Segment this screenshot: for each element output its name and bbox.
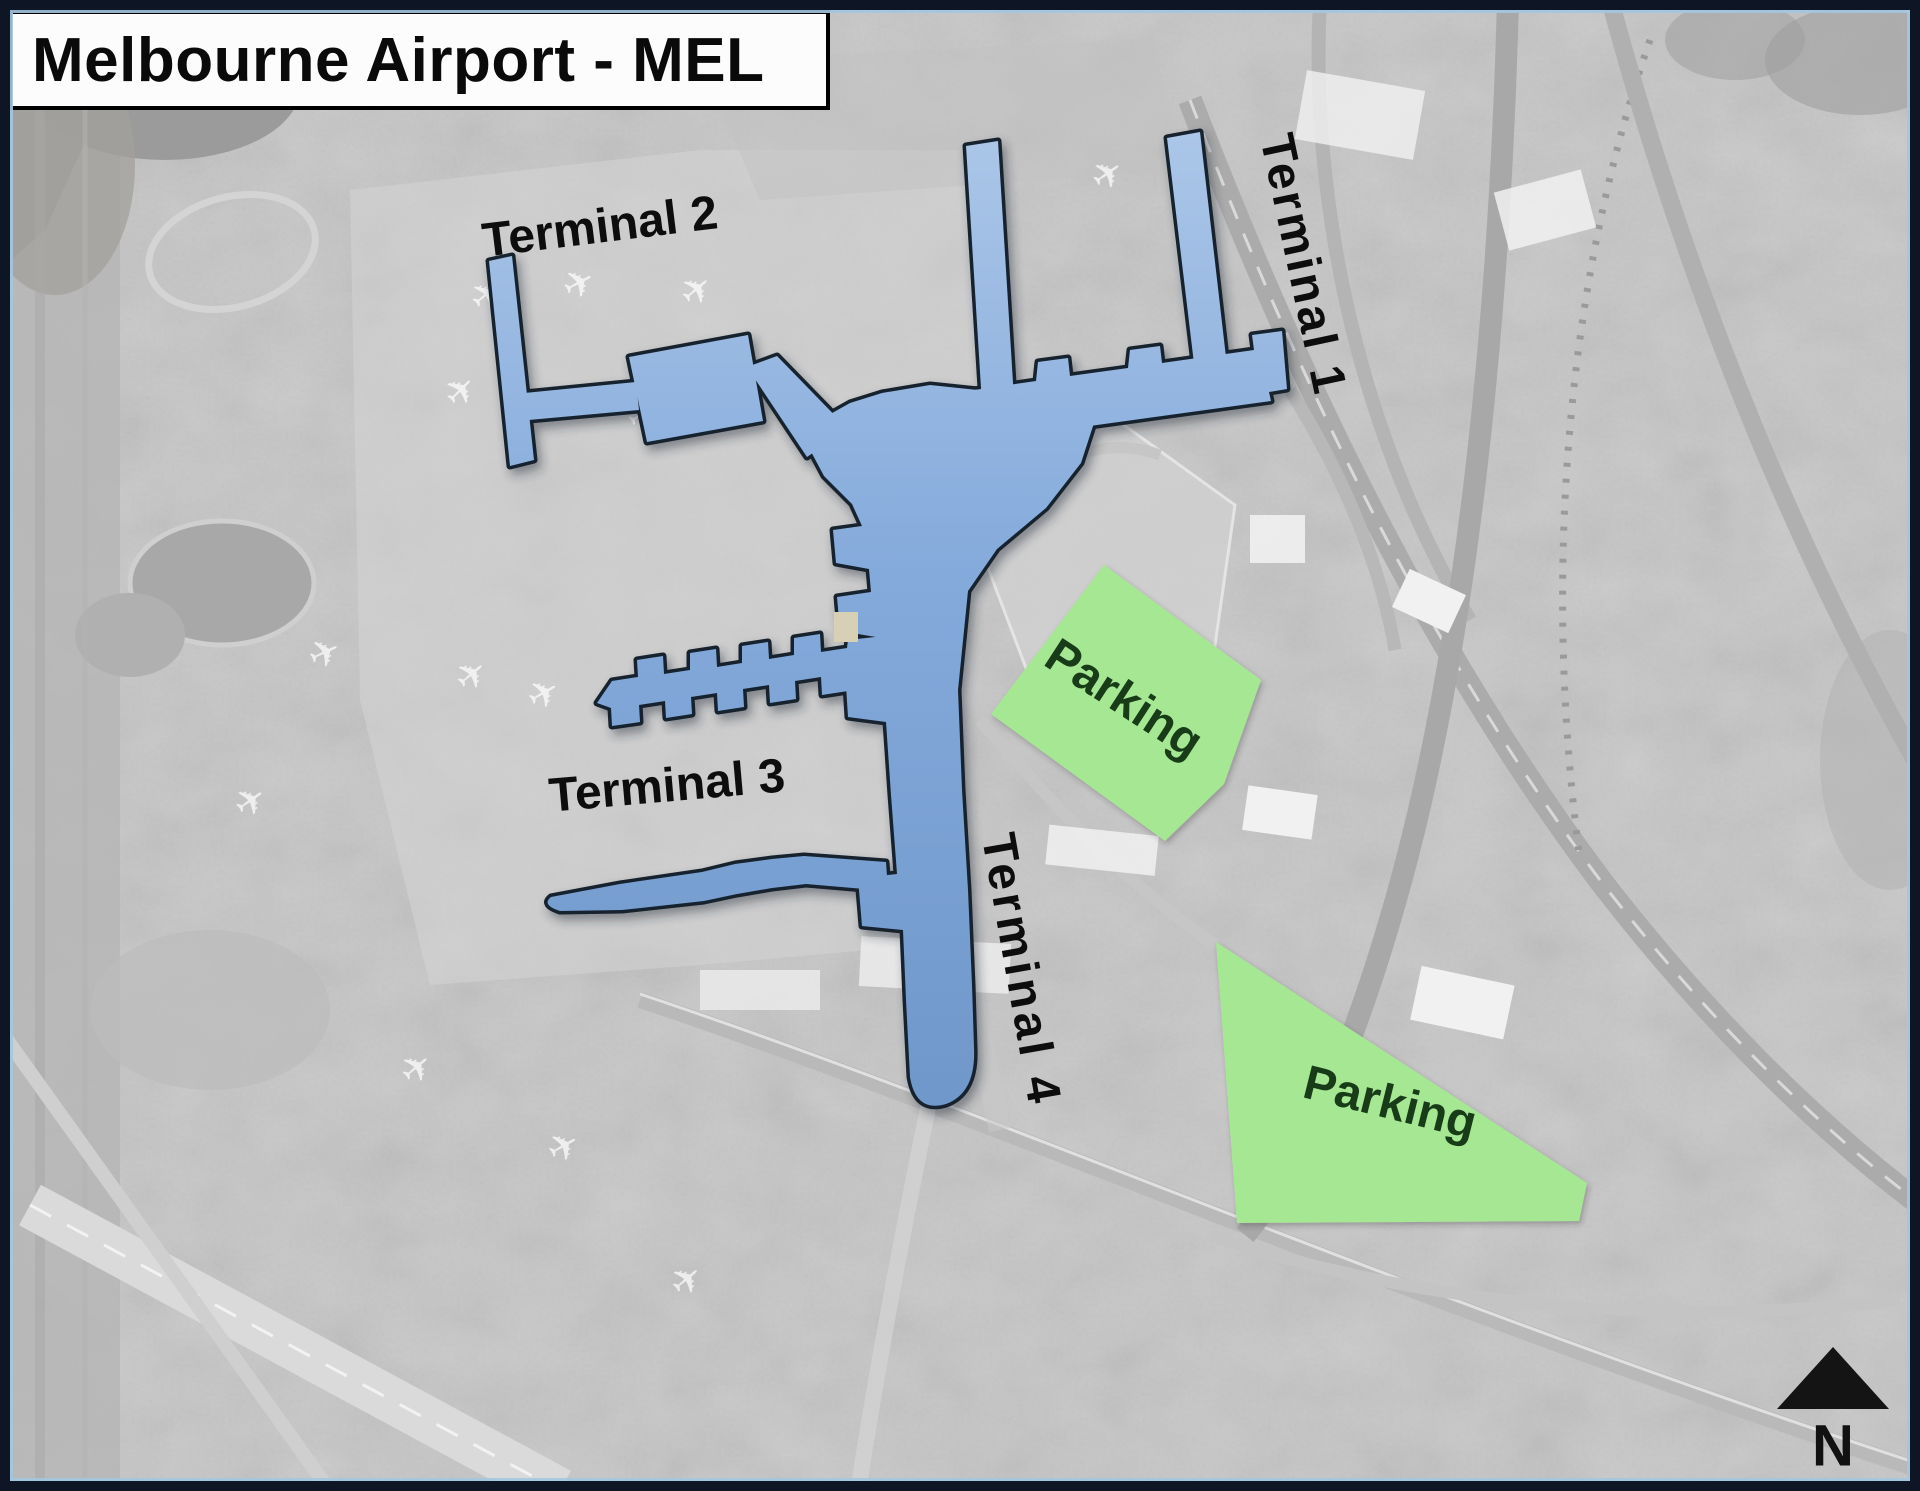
airport-map: ✈ ✈ ✈ ✈ ✈ ✈ ✈ ✈ ✈ ✈ ✈ ✈ ✈: [0, 0, 1920, 1491]
airport-map-canvas: ✈ ✈ ✈ ✈ ✈ ✈ ✈ ✈ ✈ ✈ ✈ ✈ ✈: [0, 0, 1920, 1491]
terminal-courtyard: [834, 612, 858, 642]
north-label: N: [1812, 1413, 1854, 1480]
map-title-box: Melbourne Airport - MEL: [8, 10, 830, 110]
map-title: Melbourne Airport - MEL: [32, 25, 765, 96]
